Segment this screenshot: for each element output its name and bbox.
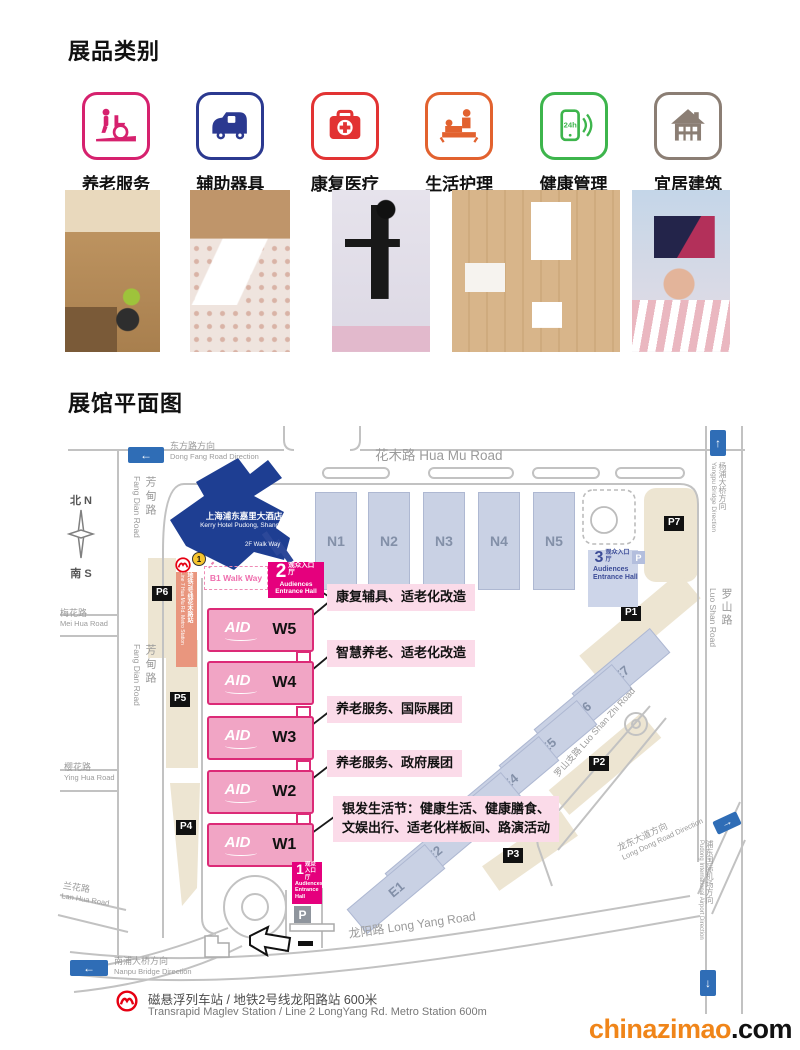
huamu-road-label: 花木路 Hua Mu Road [375, 448, 503, 465]
meihua-road-label: 梅花路 Mei Hua Road [60, 608, 108, 629]
category-row: 养老服务 辅助器具 康复医疗 生活护理 24h 健康管理 [64, 92, 740, 195]
accessible-bathroom-photo [452, 190, 620, 352]
nanpu-direction-label: 南浦大桥方向 Nanpu Bridge Direction [114, 956, 192, 977]
zone-silver-line1: 银发生活节：健康生活、健康膳食、 [342, 800, 550, 819]
svg-text:24h: 24h [563, 121, 577, 130]
metro-line7-icon [175, 557, 191, 573]
hall-n5-label: N5 [545, 533, 563, 549]
parking-p6-label: P6 [152, 586, 172, 601]
luoshan-cn: 罗山路 [718, 588, 734, 718]
metro-line-number-badge: 1 [192, 552, 206, 566]
entrance-1-number: 1 [296, 862, 304, 876]
zone-label-gov-pavilion: 养老服务、政府展团 [327, 750, 462, 777]
accessible-kitchen-photo [65, 190, 160, 352]
metro7-cn: 地铁7号线花木路站 [185, 572, 194, 667]
exoskeleton-robot-photo [332, 190, 430, 352]
hall-w5-label: W5 [272, 621, 296, 639]
compass-north-label: 北 N [58, 492, 104, 508]
fangdian-road-label-lower: 芳甸路 Fang Dian Road [132, 644, 158, 804]
zone-label-silver-life-festival: 银发生活节：健康生活、健康膳食、 文娱出行、适老化样板间、路演活动 [333, 796, 559, 842]
parking-icon-entrance1: P [294, 906, 311, 923]
zone-silver-line2: 文娱出行、适老化样板间、路演活动 [342, 819, 550, 838]
parking-p7-label: P7 [664, 516, 684, 531]
aid-logo: AID [225, 782, 257, 803]
category-health-management: 24h 健康管理 [522, 92, 626, 195]
walkway-b1-box: B1 Walk Way [204, 566, 268, 590]
firstaid-kit-icon [311, 92, 379, 160]
entrance-hall-2: 2 观众入口厅 Audiences Entrance Hall [268, 562, 324, 598]
aid-logo: AID [225, 728, 257, 749]
aid-logo: AID [225, 835, 257, 856]
hall-n2-label: N2 [380, 533, 398, 549]
entrance-3-en: Audiences Entrance Hall [588, 566, 638, 582]
hall-w3-label: W3 [272, 729, 296, 747]
luoshan-road-label: 罗山路 Luo Shan Road [708, 588, 734, 718]
hall-n2: N2 [368, 492, 410, 590]
parking-p4-label: P4 [176, 820, 196, 835]
dongfang-direction-arrow-icon: ← [128, 447, 164, 463]
fangdian-cn: 芳甸路 [142, 476, 158, 636]
watermark-tld: .com [731, 1014, 792, 1044]
hall-n5: N5 [533, 492, 575, 590]
metro-logo-icon [116, 990, 138, 1012]
dongfang-en: Dong Fang Road Direction [170, 452, 259, 461]
entrance-2-en: Audiences Entrance Hall [268, 581, 324, 596]
hall-w3: AID W3 [207, 716, 314, 760]
fangdian-en: Fang Dian Road [132, 644, 142, 804]
hall-n3: N3 [423, 492, 465, 590]
parking-icon-entrance3: P [632, 551, 645, 564]
luoshan-en: Luo Shan Road [708, 588, 718, 718]
hall-w5: AID W5 [207, 608, 314, 652]
walkway-2f-label: 2F Walk Way [245, 542, 280, 548]
hall-n1-label: N1 [327, 533, 345, 549]
metro-line7-station-strip: 地铁7号线花木路站 Line 7 Hua Mu Rd. Metro Statio… [176, 572, 197, 667]
zone-label-smart-eldercare: 智慧养老、适老化改造 [327, 640, 475, 667]
entrance-1-en: Audiences Entrance Hall [292, 881, 322, 900]
eldercare-wheelchair-icon [82, 92, 150, 160]
hall-n3-label: N3 [435, 533, 453, 549]
section-title-floorplan: 展馆平面图 [68, 386, 183, 418]
category-rehab-medical: 康复医疗 [293, 92, 397, 195]
parking-p5-label: P5 [170, 692, 190, 707]
airport-en: Pudong International Airport Direction [698, 840, 704, 968]
hall-w4: AID W4 [207, 661, 314, 705]
metro7-en: Line 7 Hua Mu Rd. Metro Station [179, 572, 185, 667]
transit-note-en: Transrapid Maglev Station / Line 2 LongY… [148, 1006, 487, 1018]
parking-p3-label: P3 [503, 848, 523, 863]
zone-label-rehab-aids: 康复辅具、适老化改造 [327, 584, 475, 611]
bedside-care-icon [425, 92, 493, 160]
hall-w4-label: W4 [272, 674, 296, 692]
entrance-2-cn: 观众入口厅 [288, 562, 316, 577]
airport-cn: 浦东国际机场方向 [704, 840, 715, 968]
hall-w2-label: W2 [272, 783, 296, 801]
category-daily-care: 生活护理 [407, 92, 511, 195]
watermark-name: chinazimao [589, 1014, 731, 1044]
yangpu-en: Yangpu Bridge Direction [710, 462, 717, 582]
dongfang-cn: 东方路方向 [170, 441, 259, 452]
airport-direction-arrow-icon: ↓ [700, 970, 716, 996]
yinghua-en: Ying Hua Road [64, 773, 115, 782]
yangpu-cn: 杨浦大桥方向 [717, 462, 728, 582]
assistive-vehicle-icon [196, 92, 264, 160]
zone-label-intl-pavilion: 养老服务、国际展团 [327, 696, 462, 723]
compass: 北 N 南 S [58, 492, 104, 581]
aid-logo: AID [225, 673, 257, 694]
hotel-en: Kerry Hotel Pudong, Shanghai [190, 522, 298, 529]
adjustable-bed-photo [190, 190, 290, 352]
airport-direction-label: 浦东国际机场方向 Pudong International Airport Di… [698, 840, 715, 968]
entrance-hall-1: 1 观众入口厅 Audiences Entrance Hall [292, 862, 322, 904]
venue-floorplan-map: ← 东方路方向 Dong Fang Road Direction 花木路 Hua… [0, 420, 800, 1020]
kerry-hotel-label: 上海浦东嘉里大酒店 Kerry Hotel Pudong, Shanghai [190, 510, 298, 529]
compass-south-label: 南 S [58, 565, 104, 581]
hall-w1-label: W1 [272, 836, 296, 854]
entrance-2-number: 2 [276, 562, 287, 581]
entrance-3-number: 3 [595, 550, 604, 566]
hall-n4-label: N4 [490, 533, 508, 549]
meihua-cn: 梅花路 [60, 608, 108, 619]
category-eldercare-service: 养老服务 [64, 92, 168, 195]
vr-headset-visitor-photo [632, 190, 730, 352]
yinghua-road-label: 樱花路 Ying Hua Road [64, 762, 115, 783]
phone-24h-icon: 24h [540, 92, 608, 160]
hall-n4: N4 [478, 492, 520, 590]
entrance-hall-3: 3 观众入口厅 Audiences Entrance Hall [588, 550, 638, 607]
hotel-cn: 上海浦东嘉里大酒店 [190, 510, 298, 522]
hall-e1-label: E1 [385, 878, 407, 900]
category-livable-buildings: 宜居建筑 [636, 92, 740, 195]
section-title-exhibit-categories: 展品类别 [68, 34, 160, 66]
fangdian-en: Fang Dian Road [132, 476, 142, 636]
entrance-3-cn: 观众入口厅 [605, 550, 631, 564]
category-assistive-devices: 辅助器具 [178, 92, 282, 195]
dongfang-direction-label: 东方路方向 Dong Fang Road Direction [170, 441, 259, 462]
hall-w2: AID W2 [207, 770, 314, 814]
fangdian-road-label-upper: 芳甸路 Fang Dian Road [132, 476, 158, 636]
meihua-en: Mei Hua Road [60, 619, 108, 628]
fangdian-cn: 芳甸路 [142, 644, 158, 804]
compass-needle-icon [66, 508, 96, 560]
yangpu-direction-arrow-icon: ↑ [710, 430, 726, 456]
nanpu-direction-arrow-icon: ← [70, 960, 108, 976]
parking-p2-label: P2 [589, 756, 609, 771]
exhibition-flyer-page: 展品类别 养老服务 辅助器具 康复医疗 生活护理 [0, 0, 800, 1050]
aid-logo: AID [225, 620, 257, 641]
entrance-1-cn: 观众入口厅 [305, 862, 318, 881]
nanpu-en: Nanpu Bridge Direction [114, 967, 192, 976]
parking-p1-label: P1 [621, 606, 641, 621]
house-icon [654, 92, 722, 160]
watermark: chinazimao.com [589, 1014, 792, 1045]
yangpu-direction-label: 杨浦大桥方向 Yangpu Bridge Direction [710, 462, 728, 582]
yinghua-cn: 樱花路 [64, 762, 115, 773]
nanpu-cn: 南浦大桥方向 [114, 956, 192, 967]
